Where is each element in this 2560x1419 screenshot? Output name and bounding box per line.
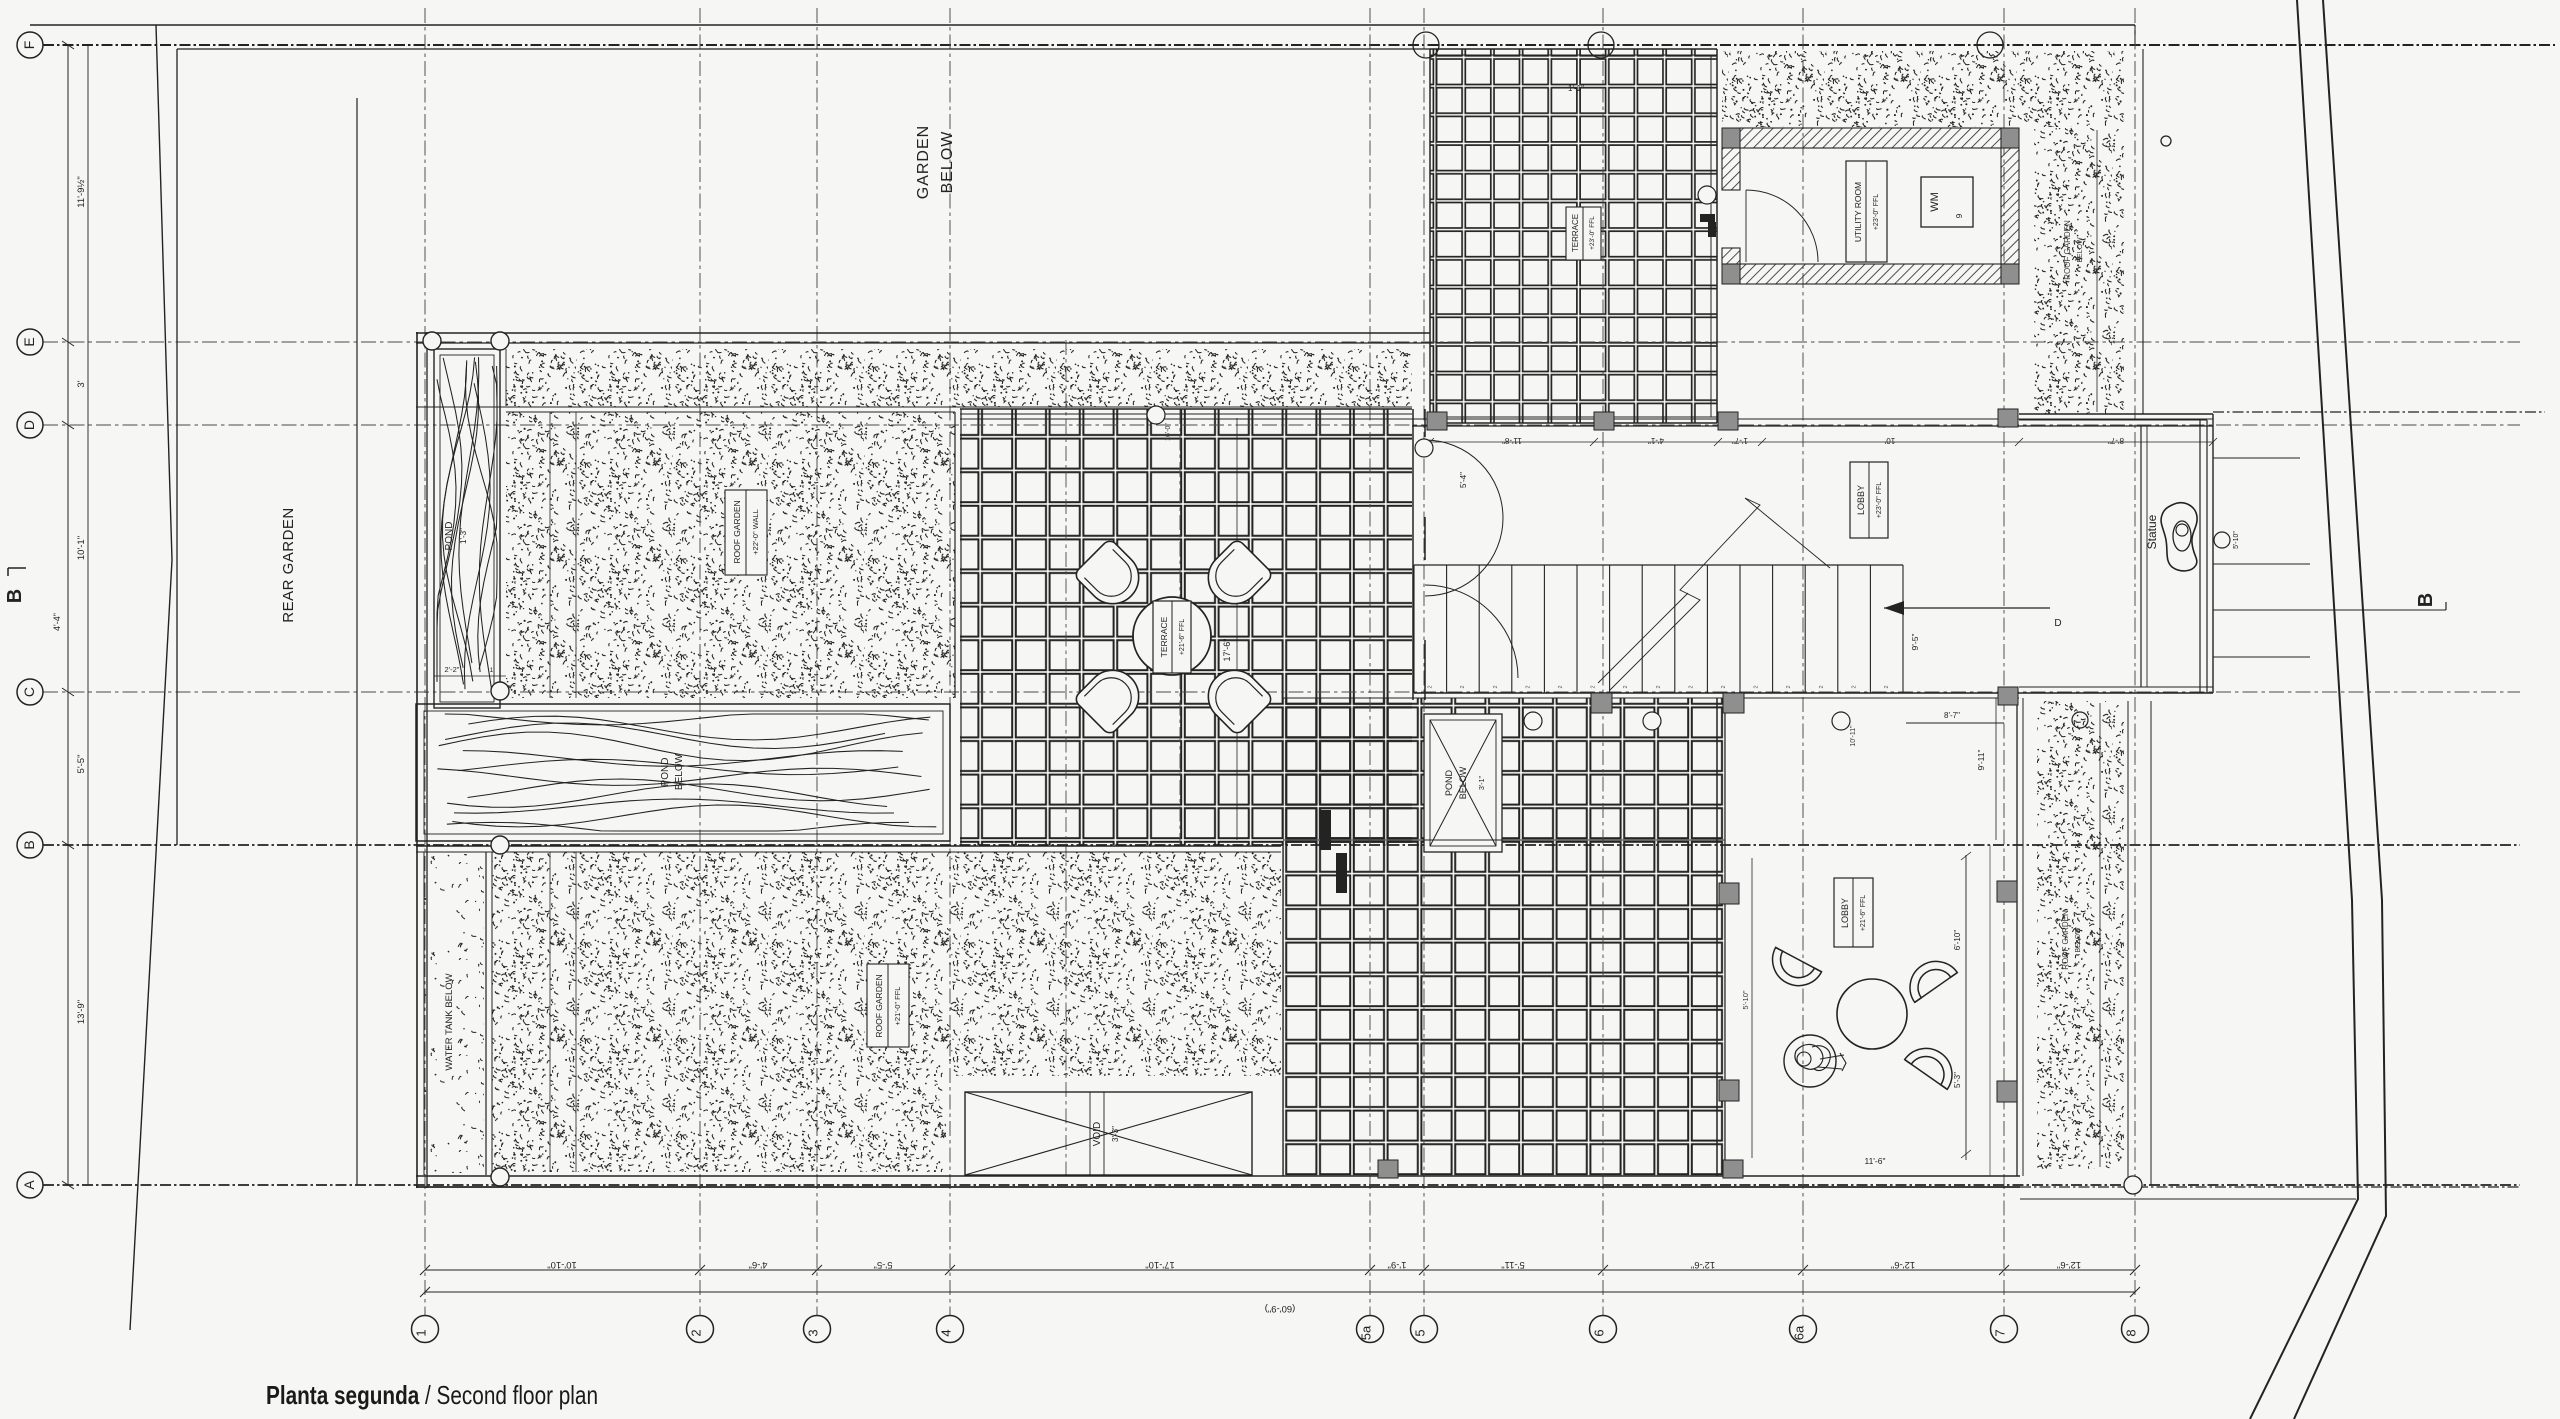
svg-text:ROOF GARDEN: ROOF GARDEN: [732, 500, 742, 563]
svg-text:11'-6": 11'-6": [1864, 1156, 1885, 1166]
svg-text:+21'-0" FFL: +21'-0" FFL: [893, 987, 902, 1026]
svg-text:16'-0": 16'-0": [1165, 423, 1172, 441]
svg-text:5'-4": 5'-4": [1459, 472, 1468, 488]
svg-text:BELOW: BELOW: [2077, 237, 2084, 263]
svg-text:5a: 5a: [1359, 1325, 1374, 1340]
svg-text:ROOF GARDEN: ROOF GARDEN: [874, 974, 884, 1037]
svg-text:2: 2: [1493, 685, 1499, 688]
svg-text:LOBBY: LOBBY: [1840, 898, 1850, 928]
svg-text:(60'-9"): (60'-9"): [1265, 1303, 1296, 1314]
svg-text:B: B: [4, 589, 26, 603]
svg-text:8: 8: [2124, 1329, 2139, 1336]
svg-text:1'-7": 1'-7": [1732, 436, 1748, 445]
svg-text:B: B: [21, 840, 37, 849]
svg-text:6a: 6a: [1792, 1325, 1807, 1340]
svg-text:11'-8": 11'-8": [1502, 436, 1522, 445]
svg-text:3: 3: [806, 1329, 821, 1336]
svg-text:BELOW: BELOW: [674, 753, 685, 790]
svg-text:+22'-0" WALL: +22'-0" WALL: [751, 509, 760, 555]
svg-text:+23'-0" FFL: +23'-0" FFL: [1876, 482, 1883, 518]
svg-text:4'-6": 4'-6": [749, 1259, 768, 1270]
svg-text:F: F: [21, 41, 37, 50]
svg-text:13'-9": 13'-9": [76, 1000, 87, 1024]
svg-text:2: 2: [1721, 685, 1727, 688]
svg-text:LOBBY: LOBBY: [1856, 485, 1866, 515]
svg-text:+21'-6" FFL: +21'-6" FFL: [1179, 619, 1186, 655]
svg-text:4'-1": 4'-1": [1648, 436, 1664, 445]
svg-text:5'-10": 5'-10": [2233, 531, 2240, 549]
svg-text:+21'-6" FFL: +21'-6" FFL: [1860, 895, 1867, 931]
svg-text:3'-3": 3'-3": [1111, 1126, 1120, 1142]
svg-text:BELOW: BELOW: [939, 131, 956, 194]
svg-text:2: 2: [1851, 685, 1857, 688]
svg-text:12'-6": 12'-6": [1891, 1259, 1915, 1270]
svg-text:TERRACE: TERRACE: [1571, 214, 1580, 252]
svg-text:5'-10": 5'-10": [1741, 990, 1750, 1009]
svg-text:WM: WM: [1929, 192, 1941, 212]
svg-text:2: 2: [1623, 685, 1629, 688]
svg-text:5'-3": 5'-3": [1953, 1072, 1962, 1088]
svg-text:2'-2": 2'-2": [445, 665, 460, 674]
svg-text:D: D: [21, 420, 37, 430]
svg-text:2: 2: [1591, 685, 1597, 688]
svg-text:17'-6": 17'-6": [1222, 639, 1232, 662]
svg-text:10'-10": 10'-10": [547, 1259, 576, 1270]
svg-text:17'-10": 17'-10": [1145, 1259, 1174, 1270]
svg-text:BELOW: BELOW: [1458, 766, 1468, 799]
svg-text:11'-9½": 11'-9½": [76, 176, 87, 207]
svg-text:8'-7": 8'-7": [2108, 436, 2124, 445]
svg-text:9'-11": 9'-11": [1976, 749, 1986, 770]
svg-text:REAR GARDEN: REAR GARDEN: [280, 507, 297, 623]
svg-text:2: 2: [1656, 685, 1662, 688]
svg-text:2: 2: [1525, 685, 1531, 688]
svg-text:1'-3": 1'-3": [459, 528, 468, 544]
svg-text:POND: POND: [1444, 770, 1454, 797]
svg-text:6: 6: [1592, 1329, 1607, 1336]
svg-text:WATER TANK BELOW: WATER TANK BELOW: [444, 973, 455, 1070]
svg-text:2: 2: [1428, 685, 1434, 688]
svg-text:4'-4": 4'-4": [52, 613, 62, 631]
svg-text:ROOF GARDEN: ROOF GARDEN: [2061, 910, 2070, 970]
svg-text:GARDEN: GARDEN: [915, 125, 932, 199]
svg-text:3'-1": 3'-1": [1479, 776, 1486, 790]
svg-text:2: 2: [1558, 685, 1564, 688]
svg-text:8'-7": 8'-7": [1944, 711, 1960, 720]
svg-text:2: 2: [1819, 685, 1825, 688]
svg-text:12'-6": 12'-6": [2057, 1259, 2081, 1270]
svg-text:5'-5": 5'-5": [874, 1259, 893, 1270]
svg-text:VOID: VOID: [1092, 1122, 1103, 1146]
svg-text:ROOF GARDEN: ROOF GARDEN: [2063, 220, 2072, 280]
svg-text:10': 10': [1884, 436, 1895, 445]
svg-text:2: 2: [1460, 685, 1466, 688]
svg-text:POND: POND: [444, 522, 455, 551]
svg-text:1: 1: [414, 1329, 429, 1336]
svg-text:Planta segunda / Second floor: Planta segunda / Second floor plan: [266, 1380, 598, 1410]
svg-text:2: 2: [1884, 685, 1890, 688]
svg-text:TERRACE: TERRACE: [1159, 616, 1169, 657]
svg-text:1'-9": 1'-9": [1388, 1259, 1407, 1270]
svg-text:D: D: [2054, 618, 2061, 629]
svg-text:2: 2: [1688, 685, 1694, 688]
svg-text:+23'-0" FFL: +23'-0" FFL: [1873, 194, 1880, 230]
svg-text:9'-5": 9'-5": [1910, 634, 1920, 651]
svg-text:E: E: [21, 337, 37, 346]
svg-text:2: 2: [1754, 685, 1760, 688]
svg-text:2: 2: [1786, 685, 1792, 688]
svg-text:4: 4: [939, 1329, 954, 1336]
svg-text:10'-1": 10'-1": [76, 536, 87, 560]
svg-text:5'-11": 5'-11": [1501, 1259, 1525, 1270]
svg-text:9: 9: [1955, 213, 1964, 218]
svg-text:UTILITY ROOM: UTILITY ROOM: [1853, 182, 1863, 242]
svg-text:BELOW: BELOW: [2075, 927, 2082, 953]
svg-text:B: B: [2415, 593, 2437, 607]
svg-text:7: 7: [1993, 1329, 2008, 1336]
svg-text:2: 2: [689, 1329, 704, 1336]
svg-text:1'-1": 1'-1": [1568, 84, 1584, 93]
svg-text:10'-11": 10'-11": [1850, 725, 1857, 747]
svg-text:A: A: [21, 1180, 37, 1190]
svg-text:5: 5: [1413, 1329, 1428, 1336]
svg-text:12'-6": 12'-6": [1691, 1259, 1715, 1270]
svg-text:Statue: Statue: [2145, 514, 2159, 549]
svg-text:+23'-0" FFL: +23'-0" FFL: [1589, 216, 1596, 250]
svg-text:5'-5": 5'-5": [76, 755, 87, 774]
svg-text:C: C: [21, 687, 37, 697]
svg-text:3': 3': [76, 380, 87, 387]
svg-text:POND: POND: [660, 758, 671, 787]
svg-text:1': 1': [490, 667, 495, 674]
svg-text:6'-10": 6'-10": [1953, 930, 1962, 951]
